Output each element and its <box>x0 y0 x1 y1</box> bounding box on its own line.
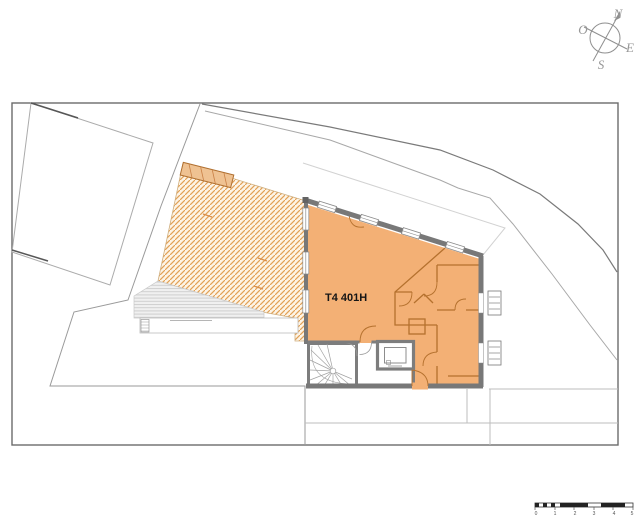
terrace-windows <box>303 208 309 313</box>
deck-strip <box>140 318 298 333</box>
wall-corner-cap <box>303 197 309 203</box>
scale-num-5: 5 <box>631 511 634 517</box>
unit-label: T4 401H <box>325 292 367 304</box>
scale-num-2: 2 <box>574 511 577 517</box>
compass-west-label: O <box>578 22 588 37</box>
scale-num-1: 1 <box>554 511 557 517</box>
floor-plan-canvas: T4 401H N O E S 0 1 2 3 4 5 <box>0 0 640 517</box>
circulation-core <box>307 341 415 387</box>
deck-ladder <box>141 320 149 333</box>
elevator <box>378 342 414 370</box>
compass-rose-icon: N O E S <box>578 6 634 72</box>
compass-north-label: N <box>613 6 624 21</box>
scale-num-3: 3 <box>593 511 596 517</box>
scale-num-0: 0 <box>535 511 538 517</box>
scale-num-4: 4 <box>613 511 616 517</box>
compass-south-label: S <box>598 57 605 72</box>
stairwell-room <box>309 344 357 387</box>
scale-bar: 0 1 2 3 4 5 <box>535 503 634 517</box>
compass-east-label: E <box>625 40 634 55</box>
